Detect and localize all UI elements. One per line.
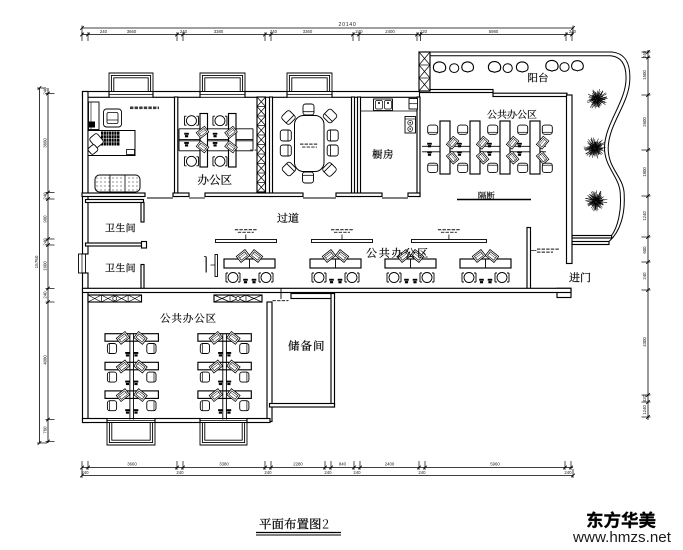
svg-text:240: 240	[569, 29, 577, 34]
svg-text:600: 600	[642, 246, 647, 254]
svg-text:www.hmzs.net: www.hmzs.net	[572, 529, 672, 546]
svg-text:4300: 4300	[642, 337, 647, 347]
svg-text:240: 240	[43, 238, 48, 246]
svg-text:420: 420	[642, 394, 647, 402]
svg-text:240: 240	[355, 29, 363, 34]
svg-text:240: 240	[180, 29, 188, 34]
svg-text:240: 240	[176, 470, 184, 475]
svg-text:240: 240	[564, 470, 572, 475]
svg-text:240: 240	[270, 29, 278, 34]
svg-text:240: 240	[642, 272, 647, 280]
svg-text:1240: 1240	[642, 211, 647, 221]
svg-text:3660: 3660	[127, 29, 137, 34]
svg-text:3360: 3360	[303, 29, 313, 34]
svg-text:2280: 2280	[293, 462, 303, 467]
svg-text:4080: 4080	[43, 355, 48, 365]
svg-text:3660: 3660	[127, 462, 137, 467]
svg-text:20140: 20140	[339, 22, 357, 28]
svg-text:15760: 15760	[34, 255, 39, 268]
svg-text:5960: 5960	[490, 462, 500, 467]
svg-text:1600: 1600	[43, 261, 48, 271]
svg-text:240: 240	[642, 50, 647, 58]
svg-text:120: 120	[420, 29, 428, 34]
svg-text:5980: 5980	[489, 29, 499, 34]
svg-text:240: 240	[324, 470, 332, 475]
svg-text:1800: 1800	[642, 167, 647, 177]
svg-text:3380: 3380	[219, 462, 229, 467]
svg-text:240: 240	[353, 470, 361, 475]
svg-text:2400: 2400	[385, 462, 395, 467]
svg-text:240: 240	[100, 29, 108, 34]
svg-text:900: 900	[43, 215, 48, 223]
svg-text:2600: 2600	[642, 117, 647, 127]
svg-text:240: 240	[43, 291, 48, 299]
svg-text:840: 840	[339, 462, 347, 467]
svg-text:240: 240	[43, 87, 48, 95]
svg-text:3380: 3380	[214, 29, 224, 34]
svg-text:240: 240	[81, 470, 89, 475]
svg-text:240: 240	[43, 192, 48, 200]
svg-text:2400: 2400	[385, 29, 395, 34]
svg-text:1240: 1240	[642, 405, 647, 415]
svg-text:3660: 3660	[43, 138, 48, 148]
svg-text:240: 240	[264, 470, 272, 475]
svg-text:760: 760	[43, 426, 48, 434]
svg-text:1500: 1500	[642, 70, 647, 80]
svg-text:240: 240	[418, 470, 426, 475]
